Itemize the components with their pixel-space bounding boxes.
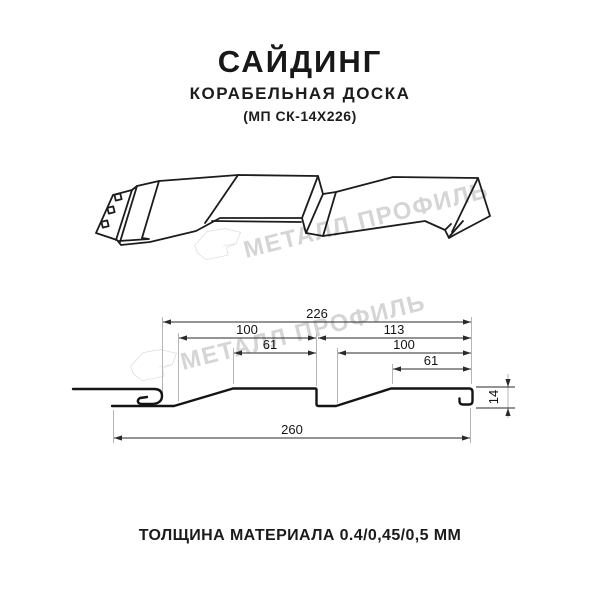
brand-logo-icon [195,229,241,260]
dimension-total-width: 260 [281,422,303,437]
technical-drawing-canvas: МЕТАЛЛ ПРОФИЛЬ МЕТАЛЛ ПРОФИЛЬ [0,0,600,600]
profile-cross-section [73,389,473,407]
dimension-visible-width: 226 [306,306,328,321]
thickness-caption: ТОЛЩИНА МАТЕРИАЛА 0.4/0,45/0,5 ММ [0,527,600,545]
dimension-left-panel: 100 [236,322,258,337]
dimension-right-segment: 113 [384,322,405,337]
dimension-height: 14 [486,390,501,404]
dimension-lines [114,319,515,440]
dimension-right-slope: 61 [424,353,438,368]
dimension-left-slope: 61 [263,337,277,352]
dimension-right-panel: 100 [393,337,415,352]
brand-logo-icon [131,350,177,381]
product-drawing-page: { "header": { "title": "САЙДИНГ", "subti… [0,0,600,600]
